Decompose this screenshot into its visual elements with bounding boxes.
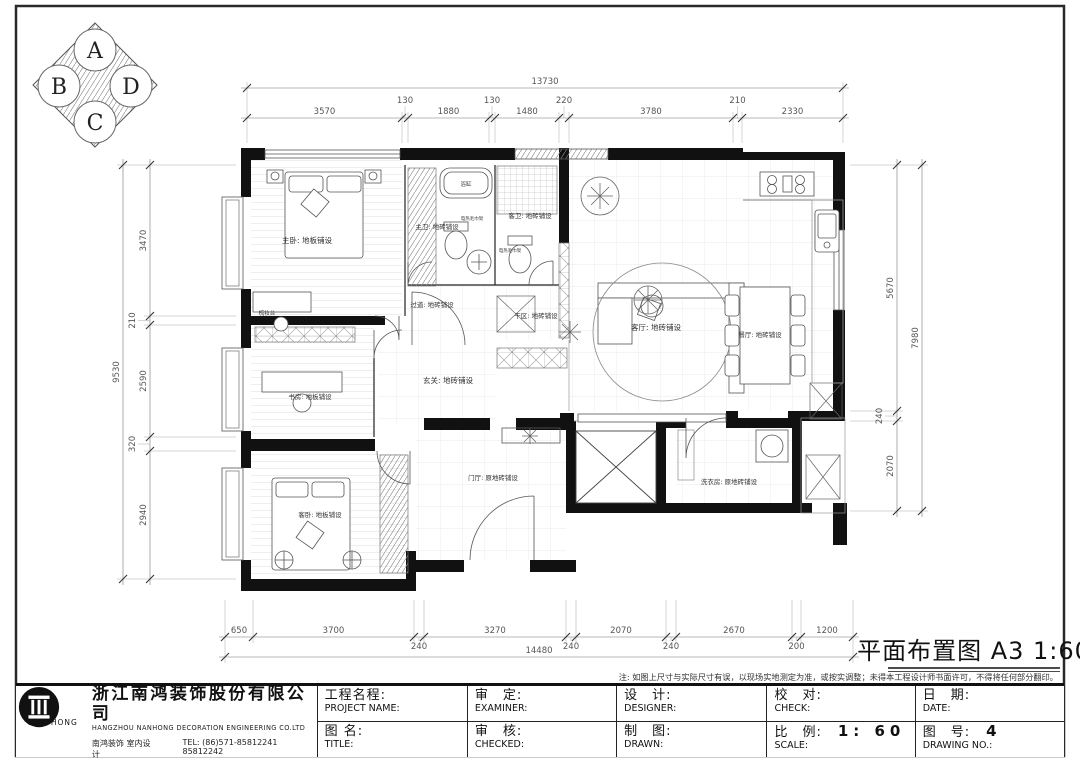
label-entry: 玄关: 地砖铺设 xyxy=(423,375,473,385)
field-drawing-no: 图 号:4 xyxy=(923,724,1064,740)
nanhong-logo-icon xyxy=(16,686,62,732)
label-living: 客厅: 地砖铺设 xyxy=(631,322,681,332)
label-foyer: 门厅: 原地砖铺设 xyxy=(468,473,518,482)
svg-text:240: 240 xyxy=(663,642,679,652)
drawing-no-value: 4 xyxy=(986,722,1001,740)
sheet-note: 注: 如图上尺寸与实际尺寸有误，以现场实地测定为准，或按实调整；未得本工程设计师… xyxy=(619,672,1058,682)
label-dry-area: 干区: 地砖铺设 xyxy=(514,311,558,320)
tb-col-date-no: 日 期: DATE: 图 号:4 DRAWING NO.: xyxy=(915,686,1064,757)
tb-col-design: 设 计: DESIGNER: 制 图: DRAWN: xyxy=(616,686,766,757)
svg-text:2070: 2070 xyxy=(886,455,896,477)
title-block: NAN HONG 浙江南鸿装饰股份有限公司 HANGZHOU NANHONG D… xyxy=(16,683,1064,757)
field-checked: 审 核: xyxy=(475,724,616,739)
company-cell: NAN HONG 浙江南鸿装饰股份有限公司 HANGZHOU NANHONG D… xyxy=(16,686,317,757)
label-study: 书房: 地板铺设 xyxy=(288,392,332,401)
compass-letter-a: A xyxy=(86,39,104,64)
field-drawn: 制 图: xyxy=(624,724,766,739)
svg-text:240: 240 xyxy=(875,408,885,424)
svg-text:2670: 2670 xyxy=(723,626,745,636)
floor-plan-canvas: A B D C xyxy=(0,0,1080,763)
svg-text:9530: 9530 xyxy=(112,361,122,383)
company-logo: NAN HONG xyxy=(28,717,78,727)
svg-text:130: 130 xyxy=(397,96,413,106)
svg-text:210: 210 xyxy=(729,96,745,106)
svg-text:650: 650 xyxy=(231,626,247,636)
field-examiner: 审 定: xyxy=(475,688,616,703)
label-guest-bath: 客卫: 地砖铺设 xyxy=(508,211,552,220)
svg-text:3700: 3700 xyxy=(323,626,345,636)
field-date: 日 期: xyxy=(923,688,1064,703)
compass-letter-c: C xyxy=(87,111,104,136)
field-project-name: 工程名程: xyxy=(325,688,467,703)
label-corridor: 过道: 地砖铺设 xyxy=(410,300,454,309)
svg-text:220: 220 xyxy=(556,96,572,106)
compass-letter-d: D xyxy=(122,75,140,100)
label-master-bath: 主卫: 地砖铺设 xyxy=(415,222,459,231)
svg-text:200: 200 xyxy=(788,642,804,652)
svg-text:3270: 3270 xyxy=(484,626,506,636)
svg-text:2330: 2330 xyxy=(782,107,804,117)
label-dining: 餐厅: 地砖铺设 xyxy=(738,330,782,339)
drawing-title: 平面布置图 A3 1:60 xyxy=(857,637,1080,665)
tb-col-examine: 审 定: EXAMINER: 审 核: CHECKED: xyxy=(467,686,616,757)
tb-col-project: 工程名程: PROJECT NAME: 图 名: TITLE: xyxy=(317,686,467,757)
svg-text:240: 240 xyxy=(411,642,427,652)
label-master-bedroom: 主卧: 地板铺设 xyxy=(282,235,332,245)
svg-text:2940: 2940 xyxy=(139,504,149,526)
elevator-shaft xyxy=(576,431,656,503)
svg-text:210: 210 xyxy=(128,312,138,328)
svg-text:2070: 2070 xyxy=(610,626,632,636)
svg-text:240: 240 xyxy=(563,642,579,652)
label-dresser: 梳妆台 xyxy=(259,309,276,317)
svg-text:1880: 1880 xyxy=(438,107,460,117)
company-tel: TEL: (86)571-85812241 85812242 xyxy=(183,738,317,760)
svg-text:7980: 7980 xyxy=(911,327,921,349)
company-name: 浙江南鸿装饰股份有限公司 xyxy=(92,684,317,724)
compass-letter-b: B xyxy=(51,75,67,100)
company-dept: 南鸿装饰 室内设计 xyxy=(92,738,157,760)
drawing-sheet: A B D C xyxy=(0,0,1080,763)
svg-text:3470: 3470 xyxy=(139,230,149,252)
label-laundry: 洗衣房: 原地砖铺设 xyxy=(701,477,758,486)
field-check: 校 对: xyxy=(774,688,914,703)
tb-col-check-scale: 校 对: CHECK: 比 例:1: 60 SCALE: xyxy=(766,686,914,757)
field-designer: 设 计: xyxy=(624,688,766,703)
label-guest-bedroom: 客卧: 地板铺设 xyxy=(298,510,342,519)
svg-text:1480: 1480 xyxy=(516,107,538,117)
svg-text:5670: 5670 xyxy=(886,277,896,299)
label-towel-rack-master: 电热毛巾架 xyxy=(461,215,484,222)
svg-text:1200: 1200 xyxy=(816,626,838,636)
company-name-en: HANGZHOU NANHONG DECORATION ENGINEERING … xyxy=(92,724,317,733)
label-towel-rack-guest: 电热毛巾架 xyxy=(499,247,522,254)
svg-text:130: 130 xyxy=(484,96,500,106)
field-title: 图 名: xyxy=(325,724,467,739)
compass-rose: A B D C xyxy=(33,23,157,147)
svg-text:320: 320 xyxy=(128,436,138,452)
svg-text:2590: 2590 xyxy=(139,370,149,392)
svg-text:14480: 14480 xyxy=(525,646,552,656)
svg-text:3780: 3780 xyxy=(640,107,662,117)
svg-text:3570: 3570 xyxy=(314,107,336,117)
svg-text:13730: 13730 xyxy=(531,77,558,87)
field-scale: 比 例:1: 60 xyxy=(774,724,914,740)
label-bathtub: 浴缸 xyxy=(460,180,472,188)
scale-value: 1: 60 xyxy=(838,722,906,740)
drawing-title-block: 平面布置图 A3 1:60 注: 如图上尺寸与实际尺寸有误，以现场实地测定为准，… xyxy=(619,637,1080,682)
